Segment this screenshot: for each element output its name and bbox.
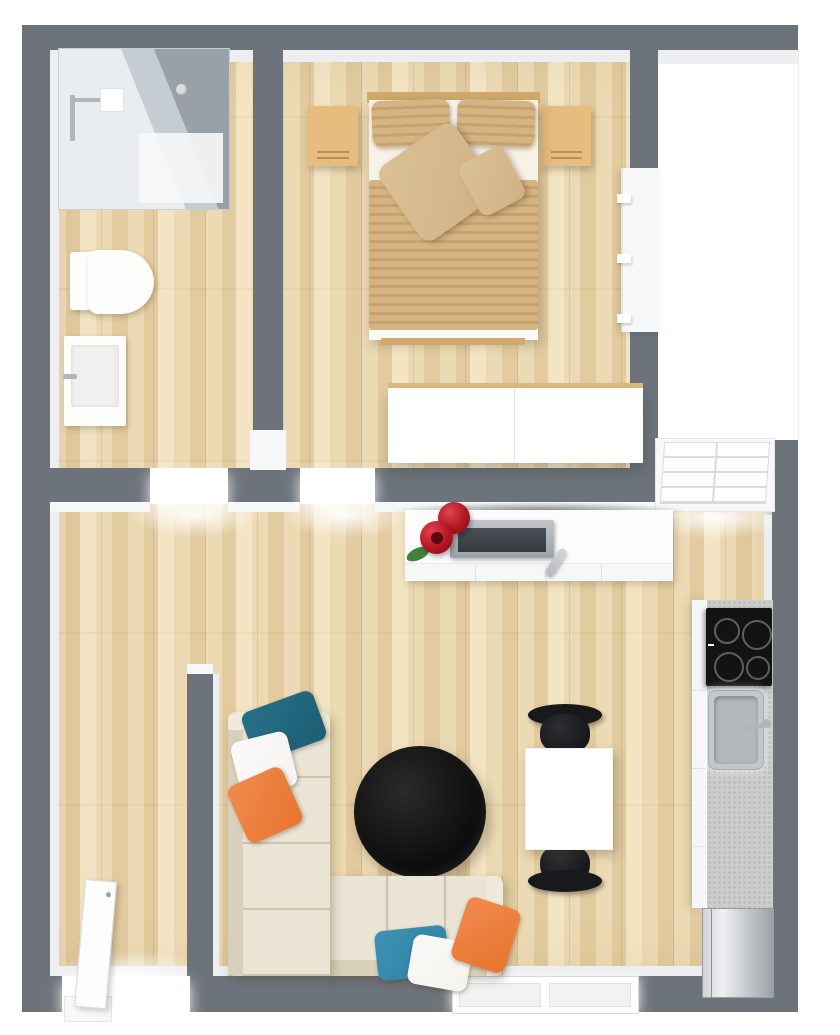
hall-wall-long-segment <box>375 468 658 502</box>
tv-screen <box>458 528 546 552</box>
bedroom-door-threshold <box>300 468 375 504</box>
cooktop-control <box>708 644 714 646</box>
vanity-basin <box>71 345 119 407</box>
smoke-detector <box>176 84 187 95</box>
console-drawers <box>405 563 673 581</box>
bedroom-north-wall-face <box>283 50 630 62</box>
hall-wall-bathroom-segment <box>50 468 150 502</box>
hall-wall-south-face-b <box>228 502 300 512</box>
exterior-wall-right <box>772 440 798 1012</box>
bed-pillow-right <box>456 99 536 148</box>
shelf-bracket <box>617 254 631 263</box>
shelf-bracket <box>617 314 631 323</box>
cooktop <box>706 608 772 686</box>
hall-wall-center-segment <box>228 468 300 502</box>
exterior-wall-bottom-left <box>22 976 62 1012</box>
bathroom-door-threshold <box>150 468 228 504</box>
toilet-bowl <box>88 250 154 314</box>
dining-chair-south-back <box>528 870 602 892</box>
east-window <box>660 442 770 504</box>
kitchen-sink <box>708 690 764 770</box>
nightstand-handles <box>551 151 582 153</box>
vase-opening <box>431 532 443 544</box>
divider-wall-end-cap <box>250 430 286 470</box>
double-bed <box>367 92 540 345</box>
sink-faucet-base <box>762 719 771 728</box>
sink-vanity <box>64 336 126 426</box>
sink-basin <box>714 696 758 764</box>
living-room-wall-stub <box>187 672 213 976</box>
floor-plan-render <box>0 0 840 1035</box>
red-vase-with-flower <box>420 521 453 554</box>
fridge-seam <box>711 909 712 997</box>
drawer-seam <box>475 564 476 581</box>
vanity-faucet <box>63 374 77 379</box>
dresser-seam <box>514 388 515 463</box>
burner-small-bottom <box>746 656 770 680</box>
shower-head-plate <box>100 88 124 112</box>
bedroom-wall-shelf-unit <box>621 168 660 332</box>
wall-stub-side-face <box>213 674 219 976</box>
dining-table <box>525 748 613 850</box>
south-window-pane-left <box>459 983 541 1007</box>
burner-large-top <box>742 620 772 650</box>
fridge <box>702 908 774 998</box>
nightstand-handles <box>317 151 349 153</box>
wall-stub-end-cap <box>187 664 213 674</box>
shower-enclosure <box>58 48 230 210</box>
bed-foot-wood <box>381 338 525 345</box>
south-window-pane-right <box>549 983 631 1007</box>
balcony-wall-face <box>658 50 798 64</box>
balcony-area <box>658 50 799 440</box>
door-handle <box>106 892 111 897</box>
bathroom-bedroom-divider-wall <box>253 50 283 468</box>
coffee-table <box>354 746 486 878</box>
shelf-bracket <box>617 194 631 203</box>
south-window <box>452 976 639 1014</box>
bedroom-balcony-wall-upper <box>630 50 658 170</box>
burner-large-bottom <box>714 652 744 682</box>
nightstand-left <box>308 106 358 166</box>
bedroom-dresser <box>388 388 643 463</box>
exterior-wall-top <box>22 25 798 50</box>
burner-small-top <box>714 618 740 644</box>
nightstand-right <box>542 106 591 166</box>
shower-tray <box>139 133 223 203</box>
hall-wall-south-face-a <box>50 502 150 512</box>
drawer-seam <box>601 564 602 581</box>
exterior-wall-left <box>22 25 50 1012</box>
